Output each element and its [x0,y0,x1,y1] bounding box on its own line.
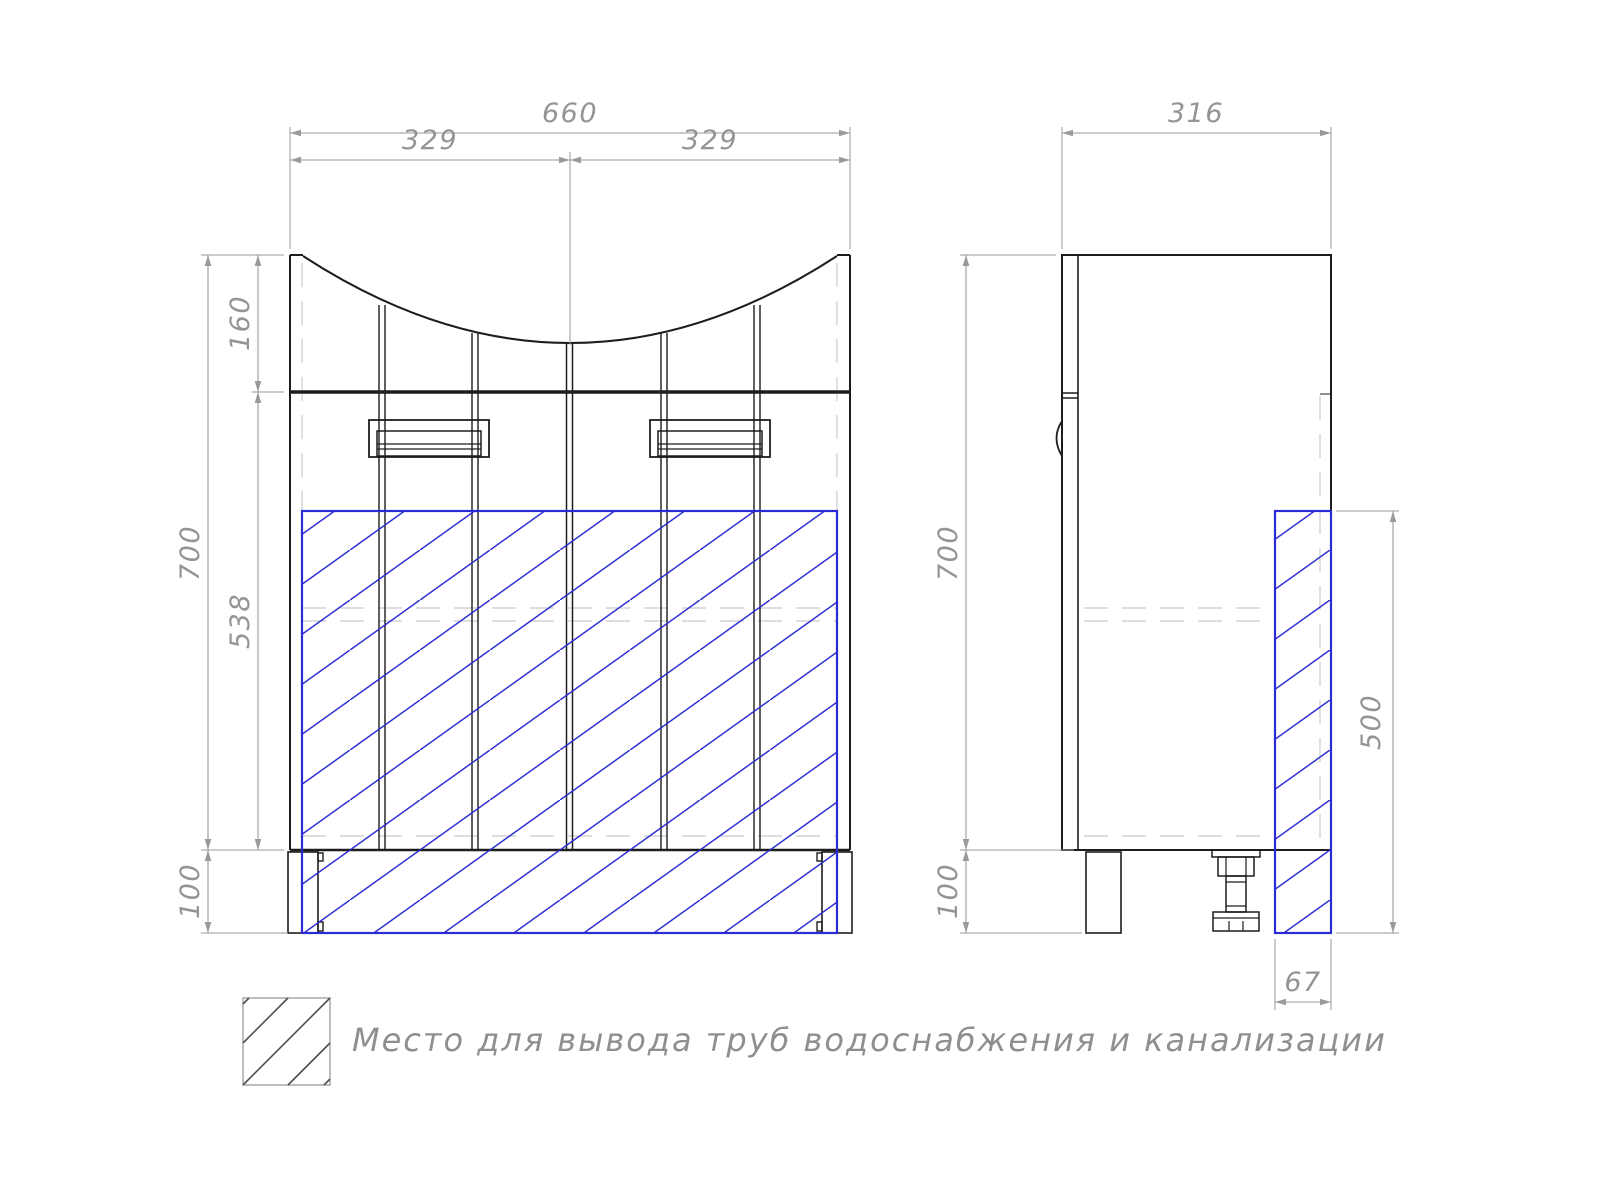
legend-label: Место для вывода труб водоснабжения и ка… [352,1021,1387,1059]
dim-front-door-height: 538 [225,593,256,649]
dim-side-body-height: 700 [933,525,964,581]
door-handle-left [369,420,489,457]
front-view: 660 329 329 160 538 700 100 [175,98,852,933]
dim-side-leg-height: 100 [933,863,964,919]
dim-front-leg-height: 100 [175,863,206,919]
legend-hatch-swatch [243,998,330,1085]
technical-drawing-canvas: 660 329 329 160 538 700 100 [0,0,1600,1200]
dim-front-right-door-width: 329 [682,125,738,156]
dim-front-left-door-width: 329 [402,125,458,156]
dim-side-depth: 316 [1168,98,1224,129]
dim-pipe-zone-depth: 67 [1284,967,1321,998]
side-view: 316 700 100 500 67 [933,98,1399,1010]
dim-front-total-width: 660 [542,98,598,129]
door-handle-right [650,420,770,457]
dim-front-body-height: 700 [175,525,206,581]
legend: Место для вывода труб водоснабжения и ка… [243,998,1387,1085]
dim-pipe-zone-height: 500 [1356,694,1387,750]
side-leg-front [1086,852,1121,933]
pipe-zone-front [302,511,837,933]
dim-front-apron-height: 160 [225,295,256,351]
pipe-zone-side [1275,511,1331,933]
adjustable-foot [1212,850,1260,931]
